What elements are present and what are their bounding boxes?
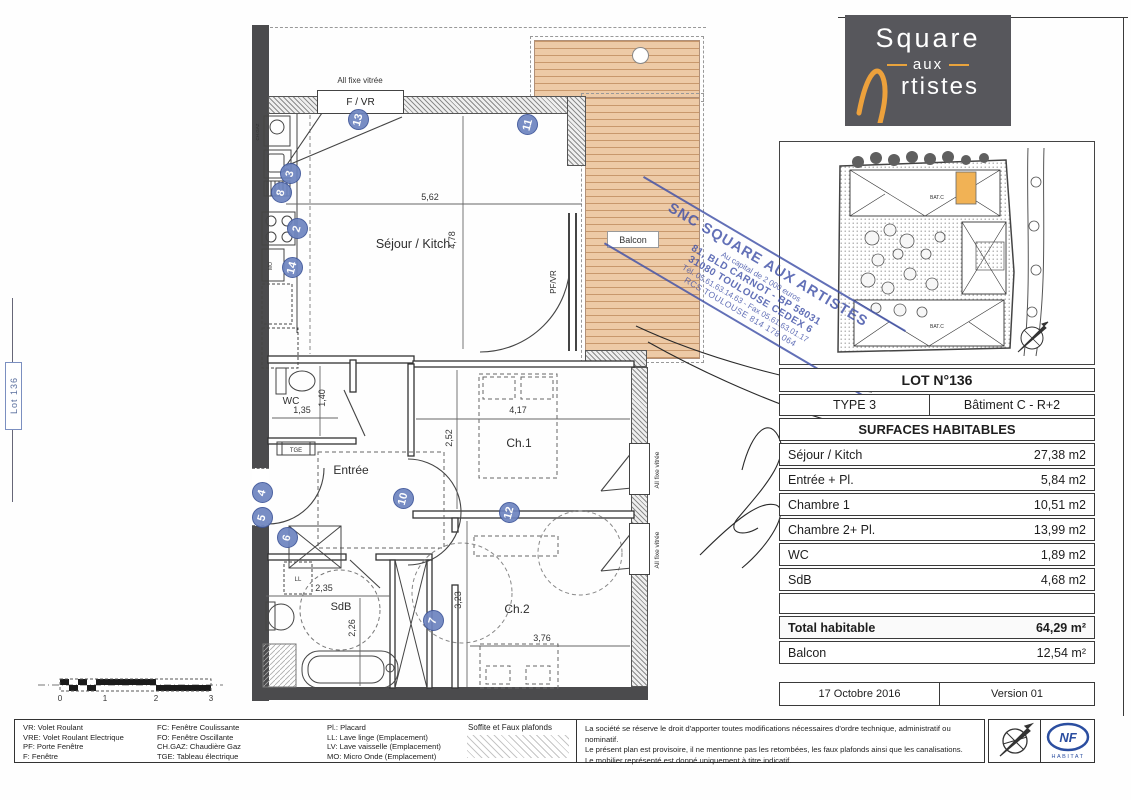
date-version-row: 17 Octobre 2016 Version 01 xyxy=(779,682,1095,706)
svg-text:2,52: 2,52 xyxy=(444,429,454,447)
soffite-label: Soffite et Faux plafonds xyxy=(445,723,575,732)
sejour-top-wall xyxy=(268,96,586,114)
balcony-drain-circle xyxy=(632,47,649,64)
table-lot-title: LOT N°136 xyxy=(779,368,1095,392)
logo-word-square: Square xyxy=(845,23,1011,54)
soffite-hatch-swatch xyxy=(467,735,569,758)
page-frame-right xyxy=(1123,17,1124,716)
table-row: Séjour / Kitch27,38 m2 xyxy=(779,443,1095,466)
ch1-top-right-wall xyxy=(585,350,647,367)
plan-marker: 11 xyxy=(517,114,538,135)
svg-text:1,40: 1,40 xyxy=(317,389,327,407)
window-caption-top: All fixe vitrée xyxy=(305,76,415,85)
room-label-wc: WC xyxy=(276,396,306,407)
plan-marker: 12 xyxy=(499,502,520,523)
logo-word-artistes: rtistes xyxy=(901,73,979,101)
table-balcony-row: Balcon12,54 m² xyxy=(779,641,1095,664)
plan-marker: 13 xyxy=(348,109,369,130)
svg-text:3,76: 3,76 xyxy=(533,633,551,643)
table-row: SdB4,68 m2 xyxy=(779,568,1095,591)
svg-text:3: 3 xyxy=(209,694,214,703)
balcony-deck-upper xyxy=(534,40,700,98)
wc-fixtures xyxy=(276,368,315,455)
nf-cell: NF HABITAT xyxy=(1041,720,1094,762)
legend-divider xyxy=(576,720,577,762)
floor-plan-sheet: Lot 136 xyxy=(0,0,1131,800)
logo-dash-right xyxy=(949,64,969,66)
table-type-row: TYPE 3 Bâtiment C - R+2 xyxy=(779,394,1095,416)
highlighted-lot-unit xyxy=(956,172,976,204)
legend-box: VR: Volet Roulant VRE: Volet Roulant Ele… xyxy=(14,719,985,763)
brand-logo: Square aux rtistes xyxy=(845,15,1011,126)
scale-bar: 0 1 2 3 xyxy=(38,667,228,705)
bottom-wall xyxy=(252,687,648,700)
main-left-wall xyxy=(252,25,269,701)
plan-marker: 14 xyxy=(282,257,303,278)
plan-marker: 4 xyxy=(252,482,273,503)
plan-marker: 10 xyxy=(393,488,414,509)
lot-tag-line-bottom xyxy=(12,428,13,502)
table-row: Entrée + Pl.5,84 m2 xyxy=(779,468,1095,491)
svg-text:2: 2 xyxy=(154,694,159,703)
room-label-ch2: Ch.2 xyxy=(492,602,542,616)
svg-text:NF: NF xyxy=(1059,730,1077,745)
plan-marker: 6 xyxy=(277,527,298,548)
bat-c-label-bottom: BAT.C xyxy=(930,324,944,330)
table-type-cell: TYPE 3 xyxy=(780,395,930,415)
footer-icons-box: NF HABITAT xyxy=(988,719,1095,763)
plan-marker: 3 xyxy=(280,163,301,184)
svg-text:2,35: 2,35 xyxy=(315,583,333,593)
bedroom-furniture xyxy=(412,374,622,688)
site-compass-icon xyxy=(1018,322,1048,352)
svg-text:TGE: TGE xyxy=(290,448,302,454)
sejour-right-wall xyxy=(567,96,586,166)
window-pfvr xyxy=(568,213,577,351)
door-swings xyxy=(268,113,632,588)
svg-text:0: 0 xyxy=(58,694,63,703)
table-row: WC1,89 m2 xyxy=(779,543,1095,566)
plan-marker: 2 xyxy=(287,218,308,239)
svg-text:1: 1 xyxy=(103,694,108,703)
bat-c-label-top: BAT.C xyxy=(930,195,944,201)
svg-text:HABITAT: HABITAT xyxy=(1051,754,1084,760)
table-section-title: SURFACES HABITABLES xyxy=(779,418,1095,441)
plan-marker: 8 xyxy=(271,182,292,203)
interior-walls xyxy=(268,356,634,688)
legend-column-1: VR: Volet Roulant VRE: Volet Roulant Ele… xyxy=(23,723,124,762)
plan-version: Version 01 xyxy=(940,683,1094,705)
lot-side-tag: Lot 136 xyxy=(5,362,22,430)
svg-text:All fixe vitrée: All fixe vitrée xyxy=(654,531,661,568)
room-label-ch1: Ch.1 xyxy=(494,436,544,450)
svg-text:All fixe vitrée: All fixe vitrée xyxy=(654,451,661,488)
room-label-sejour: Séjour / Kitch xyxy=(358,237,468,251)
plan-date: 17 Octobre 2016 xyxy=(780,683,940,705)
svg-text:4,17: 4,17 xyxy=(509,405,527,415)
svg-text:3,23: 3,23 xyxy=(453,591,463,609)
disclaimer: La société se réserve le droit d'apporte… xyxy=(585,724,977,766)
lot-side-label: Lot 136 xyxy=(9,377,19,414)
legend-column-2: FC: Fenêtre Coulissante FO: Fenêtre Osci… xyxy=(157,723,241,762)
table-empty-row xyxy=(779,593,1095,614)
svg-text:2,26: 2,26 xyxy=(347,619,357,637)
sdb-fixtures xyxy=(263,560,427,688)
room-label-entree: Entrée xyxy=(320,463,382,477)
property-limit-dashed-line xyxy=(270,27,706,28)
kitchen-fixtures xyxy=(262,114,310,368)
window-fvr-right-2 xyxy=(629,523,650,575)
room-label-sdb: SdB xyxy=(320,601,362,613)
table-building-cell: Bâtiment C - R+2 xyxy=(930,395,1094,415)
svg-text:5,62: 5,62 xyxy=(421,192,439,202)
lot-tag-line-top xyxy=(12,298,13,362)
compass-cell xyxy=(989,720,1041,762)
dimension-labels: 5,62 4,78 1,40 1,35 4,17 2,52 2,35 2,26 … xyxy=(293,192,551,643)
plan-marker: 5 xyxy=(252,507,273,528)
nf-habitat-logo: NF HABITAT xyxy=(1042,720,1094,762)
north-compass-icon xyxy=(992,721,1038,761)
svg-text:LL: LL xyxy=(295,577,302,583)
legend-column-3: Pl.: Placard LL: Lave linge (Emplacement… xyxy=(327,723,441,762)
plan-marker: 7 xyxy=(423,610,444,631)
window-fvr-right-1 xyxy=(629,443,650,495)
table-row: Chambre 110,51 m2 xyxy=(779,493,1095,516)
table-total-row: Total habitable64,29 m² xyxy=(779,616,1095,639)
table-row: Chambre 2+ Pl.13,99 m2 xyxy=(779,518,1095,541)
svg-text:PF/VR: PF/VR xyxy=(549,270,558,294)
